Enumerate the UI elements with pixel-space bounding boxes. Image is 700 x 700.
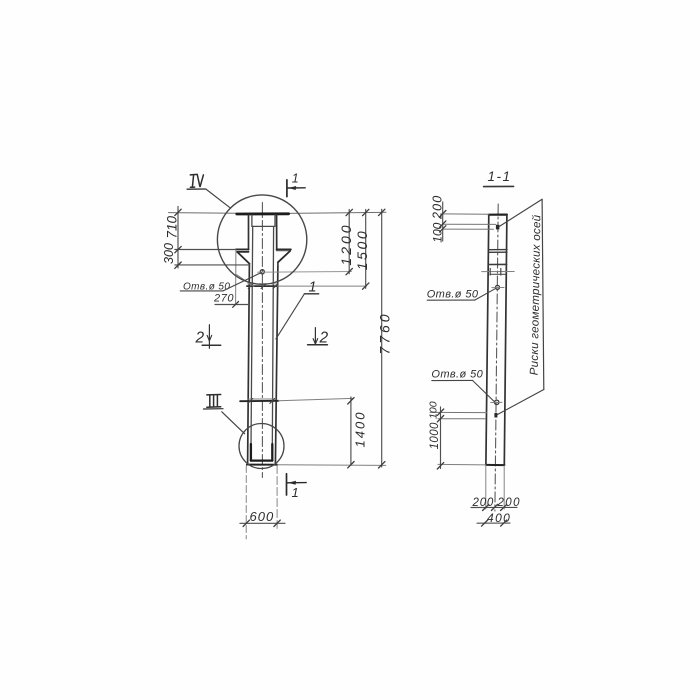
svg-text:1200: 1200 [338, 222, 354, 265]
svg-text:Отв.ø 50: Отв.ø 50 [427, 289, 479, 301]
svg-text:2: 2 [319, 329, 329, 346]
svg-text:200: 200 [431, 195, 445, 220]
svg-text:1500: 1500 [354, 229, 370, 271]
svg-text:1400: 1400 [353, 411, 368, 448]
svg-text:1000: 1000 [429, 422, 441, 449]
svg-text:300: 300 [162, 243, 176, 264]
svg-text:100: 100 [428, 401, 440, 419]
svg-text:1: 1 [292, 485, 299, 500]
svg-text:1: 1 [292, 172, 299, 186]
svg-text:600: 600 [250, 509, 275, 524]
svg-text:7760: 7760 [377, 311, 393, 354]
svg-text:Риски геометрических осей: Риски геометрических осей [529, 214, 544, 375]
svg-text:100: 100 [431, 222, 445, 242]
svg-text:1-1: 1-1 [488, 169, 512, 184]
svg-text:270: 270 [213, 293, 234, 305]
svg-text:710: 710 [165, 216, 180, 239]
svg-text:Отв.ø 50: Отв.ø 50 [431, 369, 483, 381]
svg-text:2: 2 [195, 330, 205, 347]
